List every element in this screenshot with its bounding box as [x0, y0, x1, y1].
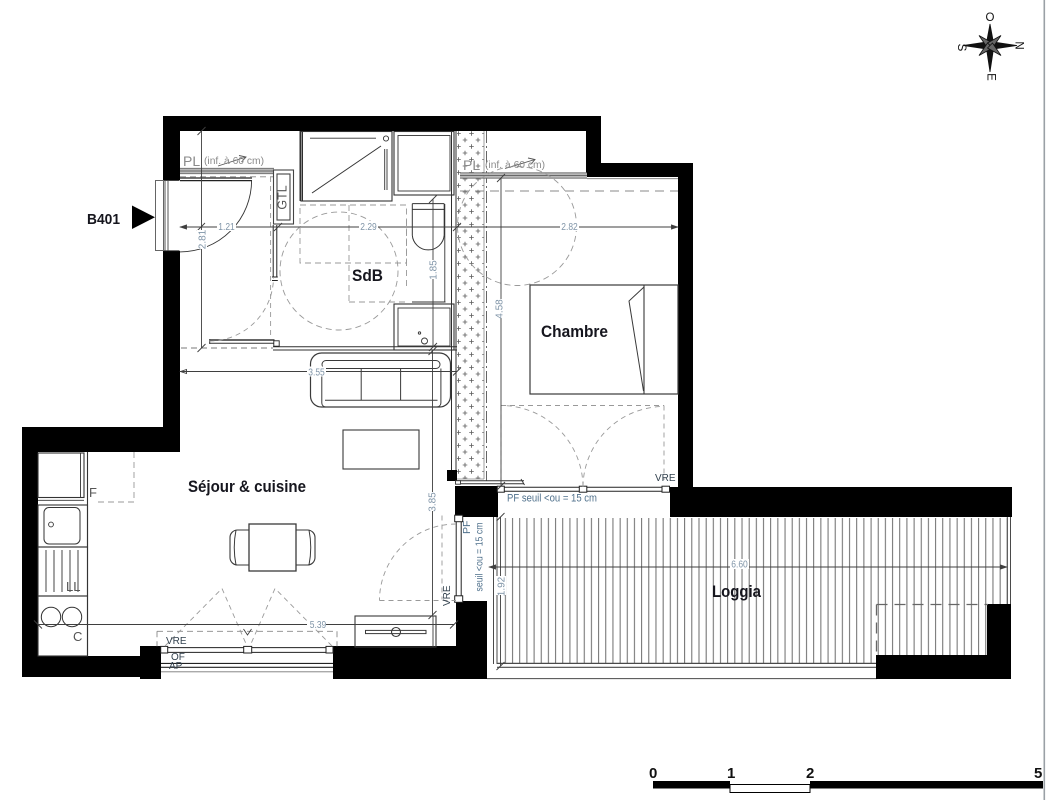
svg-text:seuil <ou = 15 cm: seuil <ou = 15 cm: [474, 522, 486, 591]
svg-text:GTL: GTL: [276, 185, 290, 209]
svg-text:LL: LL: [66, 579, 80, 594]
svg-text:Loggia: Loggia: [712, 582, 761, 601]
svg-text:VRE: VRE: [442, 585, 453, 606]
svg-text:(inf. à 60 cm): (inf. à 60 cm): [485, 160, 545, 171]
svg-text:F: F: [89, 485, 97, 500]
svg-text:2.81: 2.81: [198, 229, 209, 249]
svg-text:1.85: 1.85: [429, 260, 440, 280]
svg-text:4.58: 4.58: [495, 299, 506, 319]
svg-text:VRE: VRE: [166, 636, 187, 647]
svg-text:2.82: 2.82: [561, 222, 578, 233]
svg-text:2.29: 2.29: [360, 222, 377, 233]
svg-text:0: 0: [649, 765, 657, 782]
svg-text:5.39: 5.39: [310, 620, 327, 631]
svg-text:PF seuil <ou = 15 cm: PF seuil <ou = 15 cm: [507, 493, 597, 505]
svg-text:O: O: [986, 12, 995, 24]
svg-text:S: S: [955, 44, 967, 52]
svg-text:(inf. à 60 cm): (inf. à 60 cm): [204, 156, 264, 167]
svg-text:PF: PF: [461, 521, 473, 534]
svg-text:SdB: SdB: [352, 266, 383, 285]
svg-text:Séjour & cuisine: Séjour & cuisine: [188, 477, 306, 496]
svg-text:AP: AP: [169, 661, 183, 672]
svg-text:VRE: VRE: [655, 473, 676, 484]
svg-text:Chambre: Chambre: [541, 322, 608, 341]
svg-text:1: 1: [727, 765, 735, 782]
svg-text:2: 2: [806, 765, 814, 782]
svg-text:1.21: 1.21: [218, 222, 235, 233]
svg-text:C: C: [73, 629, 82, 644]
svg-text:PL: PL: [463, 157, 480, 173]
svg-text:1.92: 1.92: [497, 576, 508, 596]
svg-text:E: E: [985, 73, 997, 81]
svg-text:3.85: 3.85: [428, 492, 439, 512]
svg-text:PL: PL: [183, 153, 200, 169]
svg-text:3.55: 3.55: [308, 368, 325, 379]
svg-text:5: 5: [1034, 765, 1042, 782]
svg-text:6.60: 6.60: [731, 560, 748, 571]
svg-text:B401: B401: [87, 211, 120, 228]
svg-text:N: N: [1013, 41, 1025, 49]
